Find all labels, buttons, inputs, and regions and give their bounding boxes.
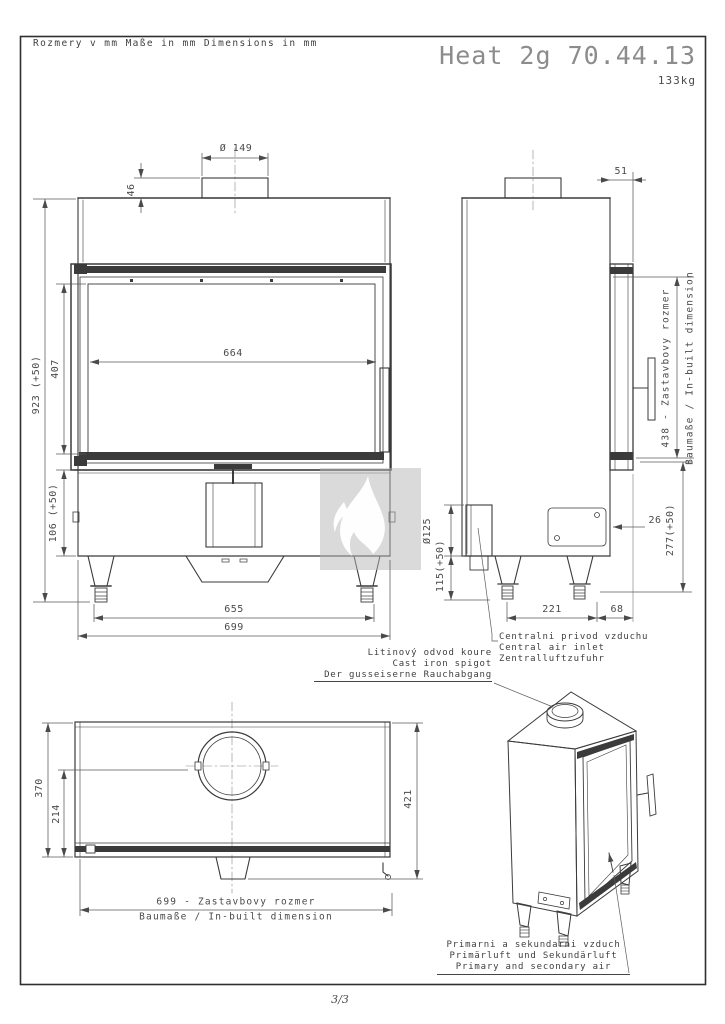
- weight-label: 133kg: [420, 74, 696, 87]
- units-note: Rozmery v mm Maße in mm Dimensions in mm: [33, 38, 318, 49]
- units-note-line: Maße in mm: [126, 38, 197, 49]
- units-note-line: Rozmery v mm: [33, 38, 118, 49]
- dim-air-inlet-height: 115(+50): [436, 540, 446, 592]
- watermark-flame-logo: [320, 468, 421, 570]
- dim-plan-depth: 370: [35, 778, 45, 798]
- primary-air-note-line: Primärluft und Sekundärluft: [437, 951, 630, 962]
- dim-feet-depth: 221: [542, 605, 562, 615]
- title-block: Heat 2g 70.44.13 133kg: [420, 42, 696, 87]
- drawing-linework: [0, 0, 725, 1024]
- dim-plan-body-depth: 421: [404, 789, 414, 809]
- dim-glass-width: 664: [223, 349, 243, 359]
- model-title: Heat 2g 70.44.13: [420, 42, 696, 70]
- dim-plan-inbuilt-line1: 699 - Zastavbovy rozmer: [156, 897, 315, 907]
- dim-plan-glass-depth: 214: [52, 804, 62, 824]
- spigot-note-line: Der gusseiserne Rauchabgang: [314, 670, 492, 683]
- dim-plan-inbuilt-line2: Baumaße / In-built dimension: [139, 912, 333, 922]
- dim-air-inlet-diameter: Ø125: [423, 518, 433, 544]
- side-view: [462, 150, 655, 599]
- dim-door-gap: 26: [648, 516, 661, 526]
- dim-rear-offset: 68: [610, 605, 623, 615]
- dim-total-height: 923 (+50): [32, 356, 42, 415]
- units-note-line: Dimensions in mm: [204, 38, 318, 49]
- primary-air-note: Primarni a sekundarni vzduch Primärluft …: [437, 940, 630, 975]
- side-dimension-lines: [444, 172, 694, 641]
- annotation-leaders: [494, 683, 629, 973]
- dim-base-height: 106 (+50): [49, 484, 59, 543]
- plan-view: [75, 702, 391, 893]
- isometric-view: [508, 692, 656, 946]
- air-inlet-note: Centralni privod vzduchu Central air inl…: [499, 632, 648, 664]
- dim-total-width: 699: [224, 623, 244, 633]
- spigot-note-line: Litinový odvod koure: [314, 648, 492, 659]
- spigot-note-line: Cast iron spigot: [314, 659, 492, 670]
- air-inlet-note-line: Central air inlet: [499, 643, 648, 654]
- dim-front-offset: 51: [614, 167, 627, 177]
- primary-air-note-line: Primarni a sekundarni vzduch: [437, 940, 630, 951]
- air-inlet-note-line: Zentralluftzufuhr: [499, 654, 648, 665]
- plan-dimension-lines: [42, 723, 423, 916]
- dim-side-base-height: 277(+50): [666, 504, 676, 556]
- dim-flue-diameter: Ø 149: [220, 144, 253, 154]
- dim-inbuilt-height-line1: 438 - Zastavbovy rozmer: [661, 288, 671, 447]
- dim-inbuilt-height-line2: Baumaße / In-built dimension: [685, 271, 695, 465]
- dim-collar-height: 46: [127, 183, 137, 196]
- spigot-note: Litinový odvod koure Cast iron spigot De…: [314, 648, 492, 682]
- drawing-sheet: Rozmery v mm Maße in mm Dimensions in mm…: [0, 0, 725, 1024]
- dim-door-height: 407: [51, 359, 61, 379]
- page-number: 3/3: [290, 993, 390, 1006]
- dim-feet-width: 655: [224, 605, 244, 615]
- air-inlet-note-line: Centralni privod vzduchu: [499, 632, 648, 643]
- primary-air-note-line: Primary and secondary air: [437, 962, 630, 973]
